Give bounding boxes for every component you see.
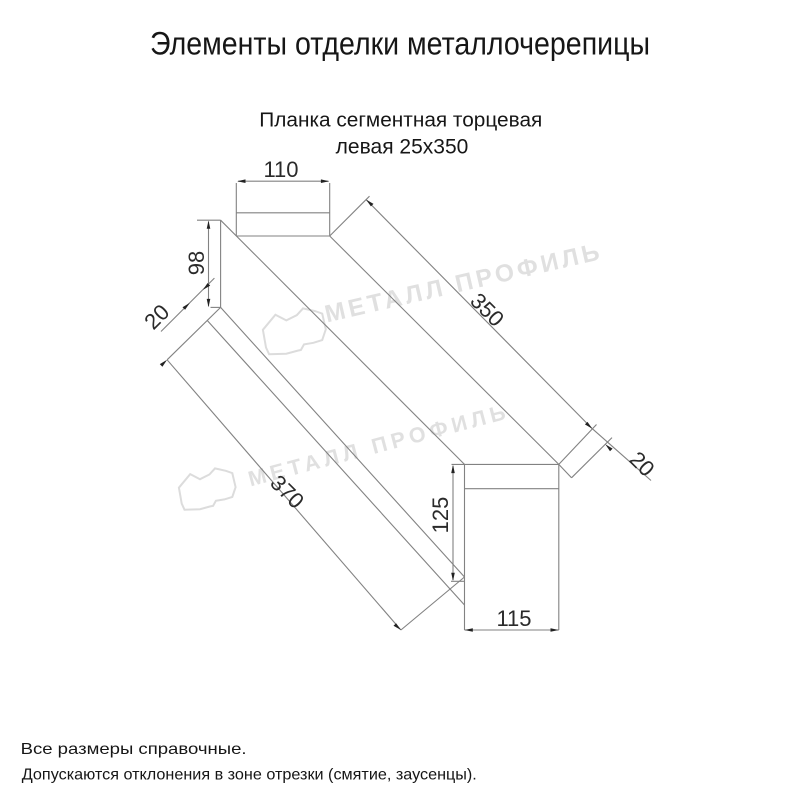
svg-text:125: 125 [428, 497, 453, 534]
svg-text:левая 25х350: левая 25х350 [336, 136, 469, 159]
svg-text:115: 115 [496, 606, 531, 631]
svg-text:Все размеры справочные.: Все размеры справочные. [21, 741, 247, 758]
svg-text:110: 110 [263, 157, 298, 182]
svg-text:98: 98 [184, 251, 209, 275]
svg-text:Элементы отделки металлочерепи: Элементы отделки металлочерепицы [150, 25, 650, 61]
svg-text:Допускаются отклонения в зоне: Допускаются отклонения в зоне отрезки (с… [22, 767, 477, 784]
svg-text:Планка сегментная торцевая: Планка сегментная торцевая [259, 110, 542, 132]
